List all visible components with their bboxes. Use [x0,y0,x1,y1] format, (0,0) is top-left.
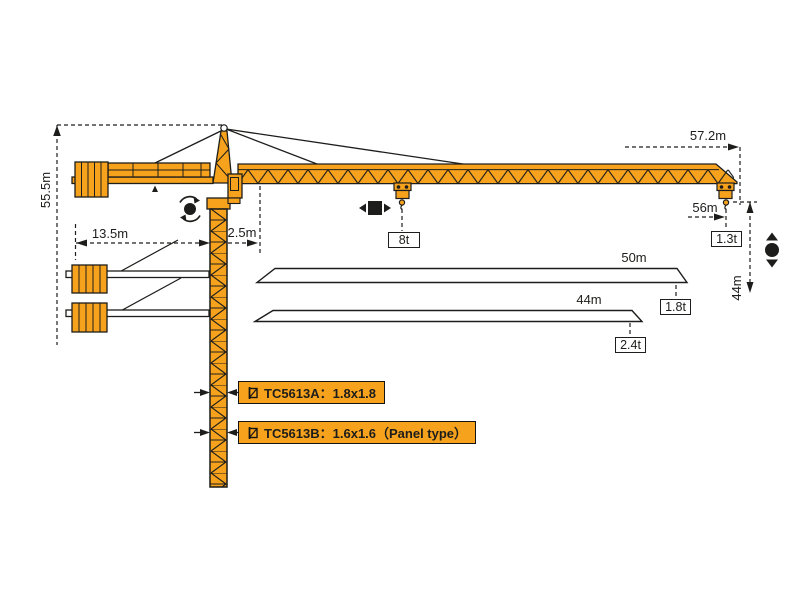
counterjib-config-44m [66,303,209,332]
load-box-2-4t: 2.4t [615,337,646,353]
dim-jib-root-offset: 2.5m [220,226,264,240]
dim-jib-length-44: 44m [569,293,609,307]
slew-rotation-icon [180,197,200,222]
hook-tip [723,200,728,205]
load-box-1-3t: 1.3t [711,231,742,247]
dim-working-radius: 56m [687,201,723,215]
dim-hook-height: 44m [730,268,744,308]
jib-44m-outline [255,311,642,322]
counterjib-marker [152,186,158,193]
dim-counterjib-radius: 13.5m [85,227,135,241]
trolley-mid [394,183,411,210]
model-a-text: TC5613A：1.8x1.8 [264,383,376,402]
dim-total-height: 55.5m [39,170,53,210]
load-box-8t: 8t [388,232,420,248]
dim-jib-length-50: 50m [614,251,654,265]
operator-cab [228,174,242,204]
jib-50m-outline [257,269,687,283]
hook-mid [399,200,404,205]
model-b-text: TC5613B：1.6x1.6（Panel type） [264,423,467,442]
mast-section-icon [247,386,259,400]
slewing-unit [207,198,230,209]
model-label-tc5613b: TC5613B：1.6x1.6（Panel type） [238,421,476,444]
apex-pin [221,125,227,131]
mast-section-icon [247,426,259,440]
counterjib-config-50m [66,265,209,293]
load-box-1-8t: 1.8t [660,299,691,315]
hook-hoist-icon [765,233,779,268]
model-label-tc5613a: TC5613A：1.8x1.8 [238,381,385,404]
trolley-travel-icon [359,201,391,215]
counterweight-block [75,162,108,197]
tower-crane-dimension-diagram: 55.5m 13.5m 2.5m 57.2m 56m 50m 44m 44m 8… [0,0,800,600]
main-jib [238,164,737,184]
tower-mast [210,209,227,487]
dim-jib-length-max: 57.2m [683,129,733,143]
counter-jib [72,162,213,197]
